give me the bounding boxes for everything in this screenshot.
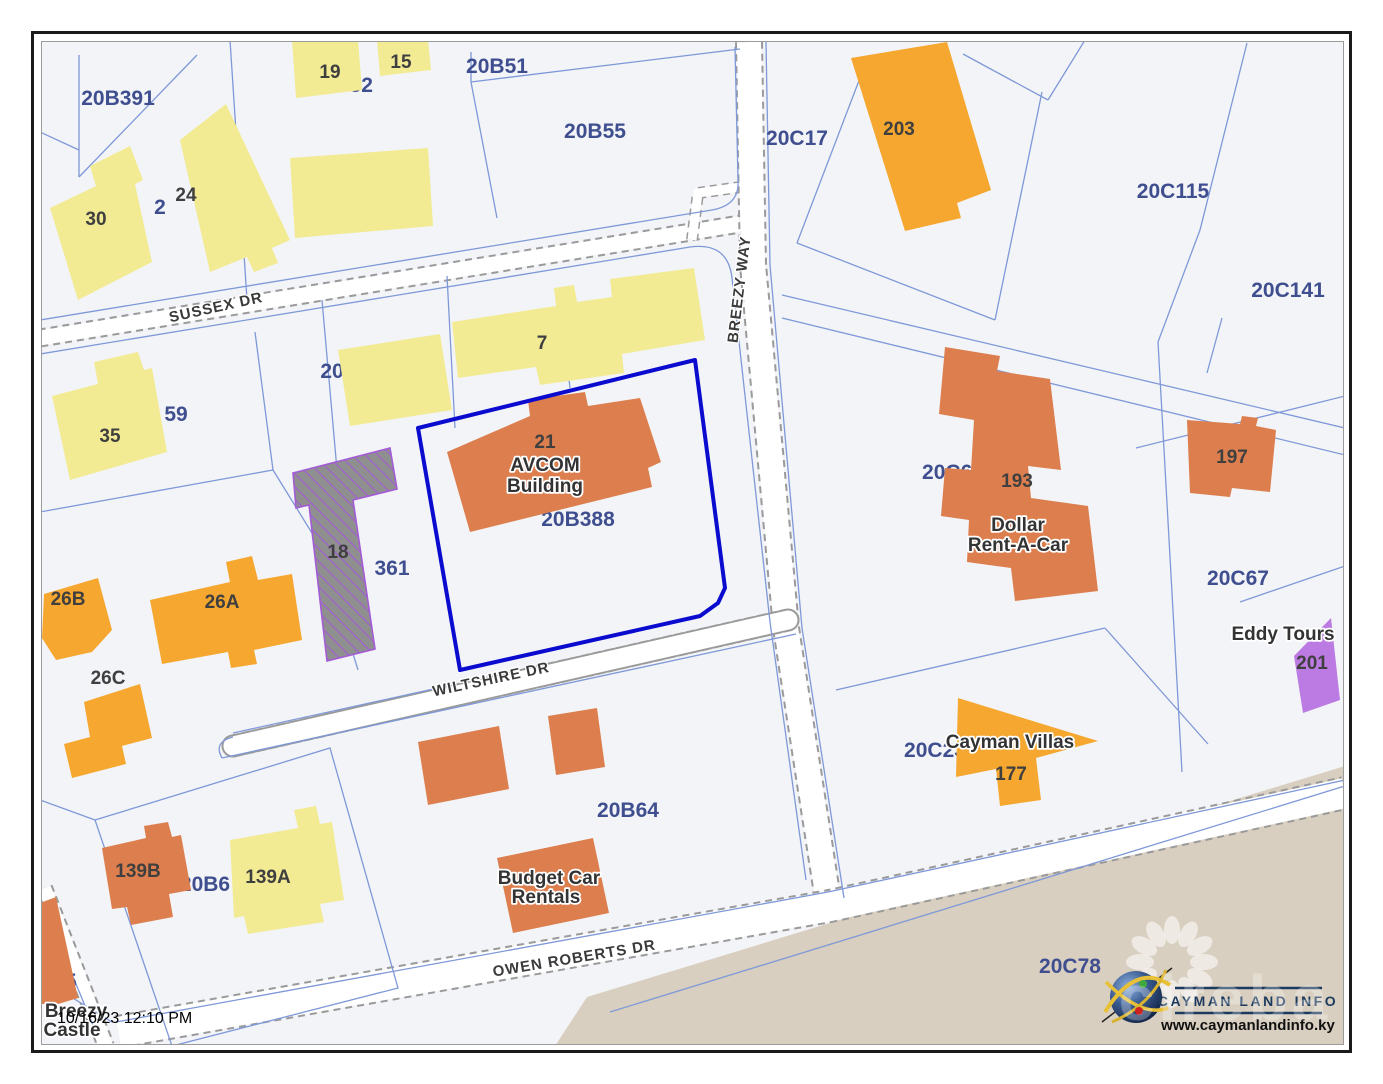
parcel-label-20b51: 20B51	[466, 55, 528, 78]
place-label-cayman-villas: Cayman Villas	[946, 732, 1075, 753]
place-label-budget-line1: Budget Car	[498, 868, 601, 889]
building-yellow-west-of-avcom[interactable]	[338, 334, 452, 426]
place-label-avcom-line2: Building	[507, 476, 583, 497]
watermark-text: cireba	[1119, 962, 1332, 1034]
building-label-26c: 26C	[91, 668, 126, 689]
building-label-24: 24	[175, 185, 197, 206]
building-label-193: 193	[1001, 471, 1033, 492]
building-label-30: 30	[85, 209, 106, 230]
parcel-label-20c67: 20C67	[1207, 567, 1269, 590]
place-label-dollar-line1: Dollar	[991, 515, 1045, 536]
building-label-177: 177	[995, 764, 1027, 785]
timestamp: 10/16/23 12:10 PM	[57, 1010, 192, 1027]
parcel-label-20b55: 20B55	[564, 120, 626, 143]
place-label-budget-line2: Rentals	[512, 887, 581, 908]
parcel-label-20c141: 20C141	[1251, 279, 1325, 302]
parcel-label-20c78: 20C78	[1039, 955, 1101, 978]
parcel-label-20b64: 20B64	[597, 799, 659, 822]
building-wiltshire-b[interactable]	[548, 708, 605, 775]
parcel-label-20b391: 20B391	[81, 87, 155, 110]
parcel-label-partial-361: 361	[374, 557, 409, 580]
place-label-eddy-tours: Eddy Tours	[1231, 624, 1334, 645]
building-label-18: 18	[327, 542, 348, 563]
building-label-21: 21	[534, 432, 556, 453]
building-label-7: 7	[537, 333, 548, 354]
parcel-map[interactable]: 20B391 20B52 20B51 20B55 20C17 20C16 20C…	[0, 0, 1383, 1084]
building-label-197: 197	[1216, 447, 1248, 468]
map-viewer-window: 20B391 20B52 20B51 20B55 20C17 20C16 20C…	[0, 0, 1383, 1084]
parcel-label-partial-2: 2	[154, 196, 166, 219]
building-label-139b: 139B	[115, 861, 160, 882]
building-label-203: 203	[883, 119, 915, 140]
building-label-139a: 139A	[245, 867, 291, 888]
cayman-land-info-logo: CAYMAN LAND INFO www.caymanlandinfo.ky c…	[1102, 962, 1338, 1034]
building-label-26b: 26B	[51, 589, 86, 610]
building-label-15: 15	[390, 52, 412, 73]
building-label-201: 201	[1296, 653, 1328, 674]
parcel-label-partial-59: 59	[164, 403, 187, 426]
place-label-avcom-line1: AVCOM	[510, 455, 579, 476]
building-label-26a: 26A	[205, 592, 240, 613]
parcel-label-20c115: 20C115	[1137, 180, 1210, 203]
building-label-35: 35	[99, 426, 121, 447]
place-label-dollar-line2: Rent-A-Car	[968, 535, 1069, 556]
building-label-19: 19	[319, 62, 340, 83]
building-unlabeled-yellow[interactable]	[290, 148, 433, 238]
parcel-label-20c17: 20C17	[766, 127, 828, 150]
